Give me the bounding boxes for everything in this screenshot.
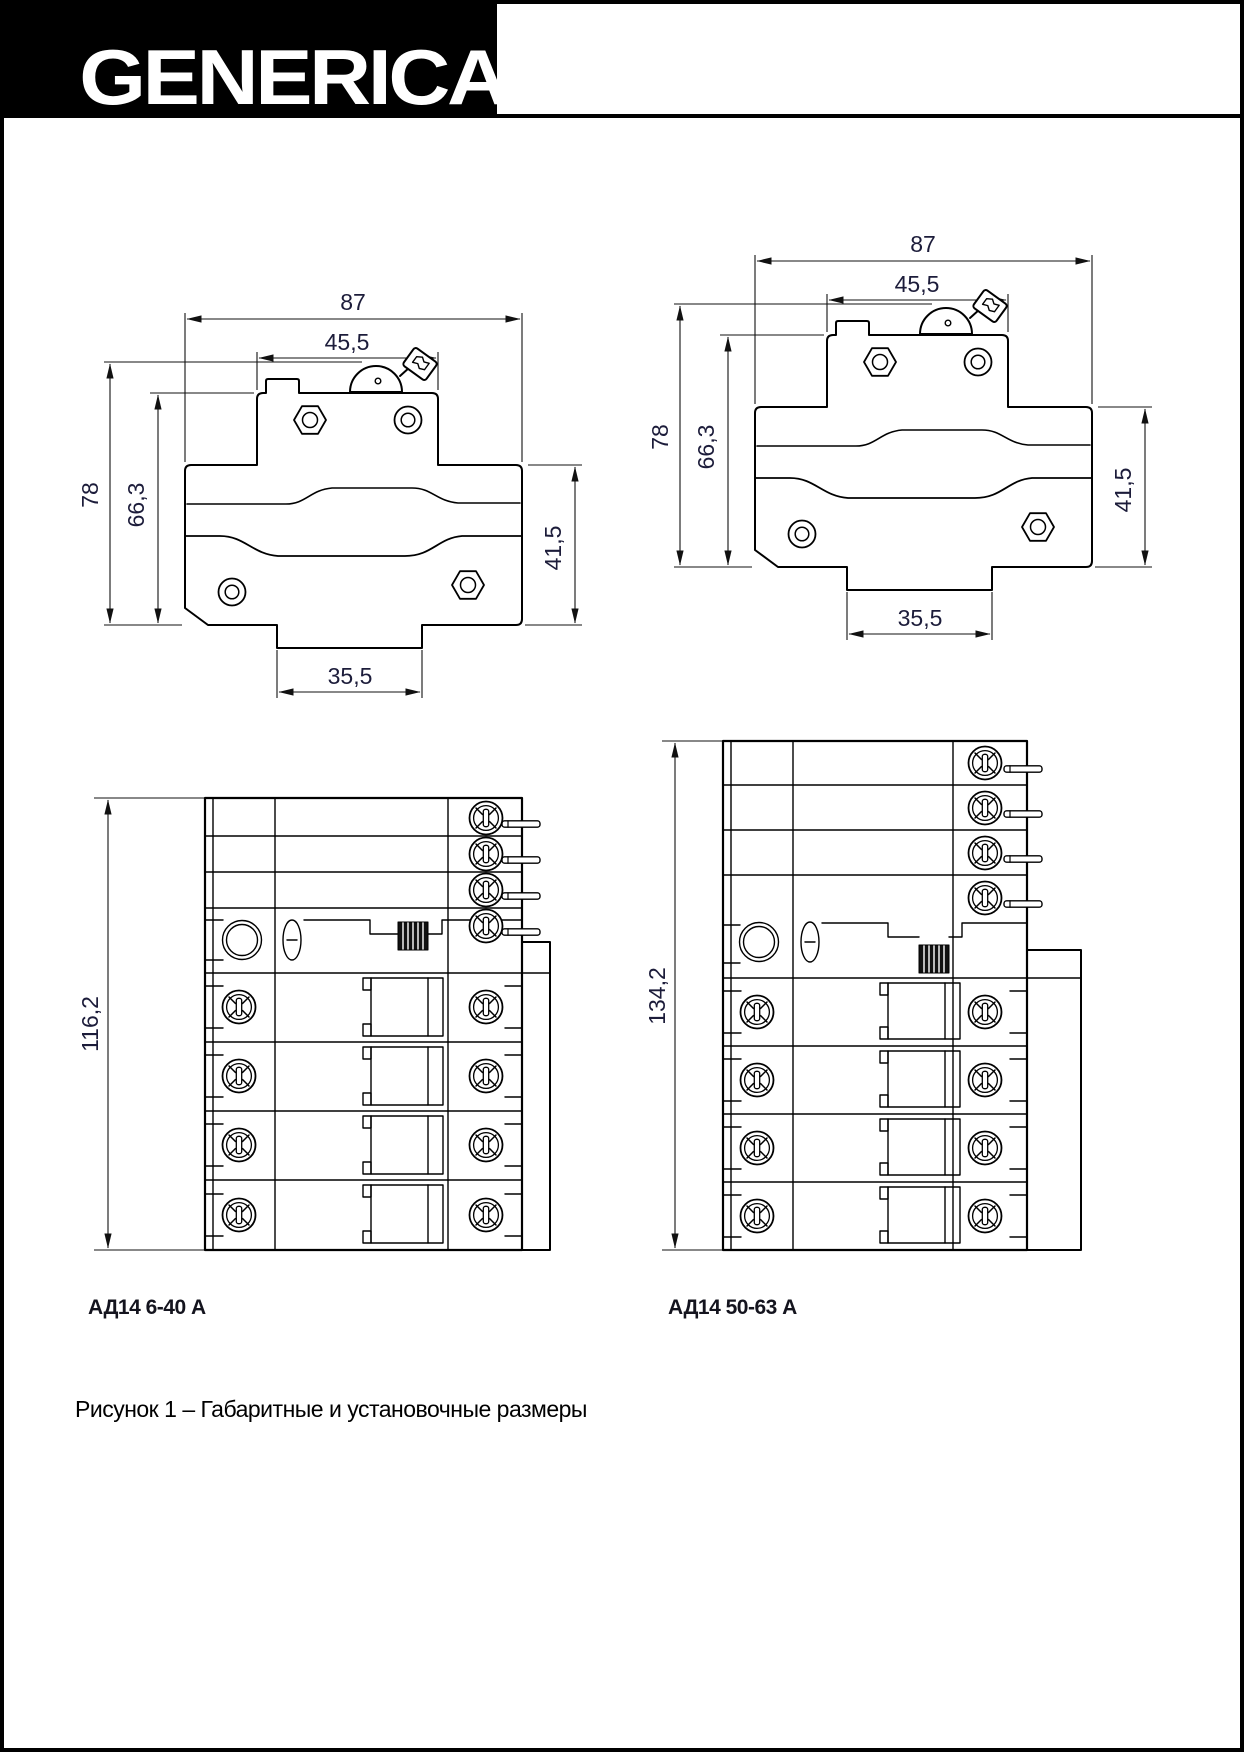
model-caption-right: АД14 50-63 А bbox=[668, 1296, 797, 1320]
dim-label-total-height: 78 bbox=[647, 424, 673, 450]
dim-label-height: 134,2 bbox=[648, 967, 670, 1025]
figure-caption: Рисунок 1 – Габаритные и установочные ра… bbox=[75, 1396, 587, 1423]
document-page: GENERICA bbox=[0, 0, 1244, 1752]
side-view-left: 87 45,5 78 66,3 41,5 35,5 bbox=[70, 240, 610, 705]
front-view-right: 134,2 bbox=[648, 735, 1148, 1260]
brand-logo-text: GENERICA bbox=[0, 42, 506, 114]
dim-height-large bbox=[662, 741, 726, 1250]
dim-label-right-height: 41,5 bbox=[1110, 468, 1136, 513]
dim-height-small bbox=[94, 798, 208, 1250]
side-view-right: 87 45,5 78 66,3 41,5 35,5 bbox=[640, 182, 1180, 647]
dim-label-total-width: 87 bbox=[340, 289, 366, 315]
dim-label-total-height: 78 bbox=[77, 482, 103, 508]
breaker-front-large bbox=[723, 741, 1081, 1250]
dim-label-body-height: 66,3 bbox=[693, 425, 719, 470]
dim-label-top-width: 45,5 bbox=[325, 329, 370, 355]
dim-label-foot-width: 35,5 bbox=[328, 663, 373, 689]
brand-logo: GENERICA bbox=[0, 0, 497, 114]
dim-label-right-height: 41,5 bbox=[540, 526, 566, 571]
dim-label-height: 116,2 bbox=[78, 996, 103, 1052]
dim-label-foot-width: 35,5 bbox=[898, 605, 943, 631]
dim-label-body-height: 66,3 bbox=[123, 483, 149, 528]
header-divider bbox=[0, 114, 1244, 118]
dim-label-top-width: 45,5 bbox=[895, 271, 940, 297]
front-view-left: 116,2 bbox=[78, 792, 558, 1262]
model-caption-left: АД14 6-40 А bbox=[88, 1296, 206, 1320]
dim-label-total-width: 87 bbox=[910, 231, 936, 257]
breaker-front-small bbox=[205, 798, 550, 1250]
